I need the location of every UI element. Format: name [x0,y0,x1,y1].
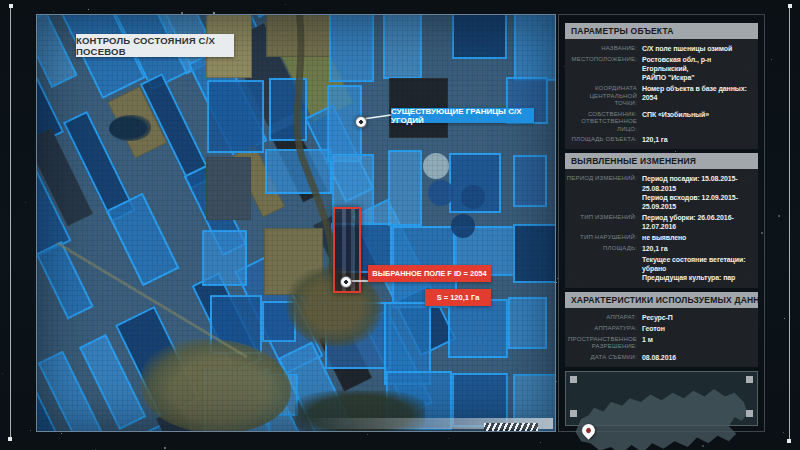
star-dot [448,438,449,439]
section-body: НАЗВАНИЕ:С/Х поле пшеницы озимойМЕСТОПОЛ… [565,39,758,149]
row-value: Текущее состояние вегетации: убрано Пред… [642,255,754,282]
satellite-map[interactable]: КОНТРОЛЬ СОСТОЯНИЯ С/Х ПОСЕВОВ СУЩЕСТВУЮ… [36,14,556,432]
row-value: 1 м [642,335,754,351]
info-row: ДАТА СЪЕМКИ:08.08.2016 [565,353,754,362]
map-field[interactable] [514,14,556,81]
info-row: ПРОСТРАНСТВЕННОЕ РАЗРЕШЕНИЕ:1 м [565,335,754,351]
map-field[interactable] [207,80,264,153]
map-field[interactable] [206,157,251,220]
row-label: КООРДИНАТА ЦЕНТРАЛЬНОЙ ТОЧКИ: [565,84,637,108]
map-field[interactable] [269,78,307,141]
lake-patch [109,115,151,141]
row-label: ПЕРИОД ИЗМЕНЕНИЙ: [565,174,637,210]
right-frame-top-cap [788,4,792,8]
map-field[interactable] [266,14,331,57]
irrigation-circle [423,153,449,179]
star-dot [53,11,54,12]
scale-stripes-icon [484,423,538,431]
info-row: ТИП НАРУШЕНИЙ:не выявлено [565,233,754,242]
star-dot [164,447,166,449]
info-row: КООРДИНАТА ЦЕНТРАЛЬНОЙ ТОЧКИ:Номер объек… [565,84,754,108]
row-value: С/Х поле пшеницы озимой [642,44,754,53]
right-frame-line [789,6,790,440]
info-section: ХАРАКТЕРИСТИКИ ИСПОЛЬЗУЕМЫХ ДАННЫХ ДЗЗАП… [565,292,758,367]
row-label: НАЗВАНИЕ: [565,44,637,53]
info-sidebar: ПАРАМЕТРЫ ОБЪЕКТАНАЗВАНИЕ:С/Х поле пшени… [558,14,765,432]
row-label: ДАТА СЪЕМКИ: [565,353,637,362]
map-field[interactable] [508,297,547,349]
row-label: АППАРАТ: [565,313,637,322]
overview-minimap[interactable] [565,371,758,426]
minimap-corner-marker [570,410,577,417]
star-dot [778,215,780,217]
row-label: СОБСТВЕННИК: ОТВЕТСТВЕННОЕ ЛИЦО: [565,110,637,134]
minimap-corner-marker [746,410,753,417]
row-value: 120,1 га [642,244,754,253]
row-label: ПРОСТРАНСТВЕННОЕ РАЗРЕШЕНИЕ: [565,335,637,351]
boundaries-callout-label: СУЩЕСТВУЮЩИЕ ГРАНИЦЫ С/Х УГОДИЙ [391,108,534,123]
right-frame-bottom-cap [787,439,791,443]
star-dot [25,202,26,203]
star-dot [30,430,31,431]
row-value: Ресурс-П [642,313,754,322]
selected-field-marker-icon [340,276,352,288]
sidebar-sections: ПАРАМЕТРЫ ОБЪЕКТАНАЗВАНИЕ:С/Х поле пшени… [565,23,758,371]
section-header: ВЫЯВЛЕННЫЕ ИЗМЕНЕНИЯ [565,153,758,169]
info-row: ПЕРИОД ИЗМЕНЕНИЙ:Период посадки: 15.08.2… [565,174,754,210]
row-label [565,255,637,282]
map-field[interactable] [106,193,180,286]
row-value: 120,1 га [642,135,754,144]
info-row: ТИП ИЗМЕНЕНИЙ:Период уборки: 26.06.2016-… [565,213,754,231]
star-dot [540,442,541,443]
star-dot [285,4,286,5]
star-dot [784,318,785,319]
left-frame-bottom-cap [8,437,12,441]
info-row: АППАРАТУРА:Геотон [565,324,754,333]
star-dot [88,9,89,10]
info-row: АППАРАТ:Ресурс-П [565,313,754,322]
info-row: ПЛОЩАДЬ:120,1 га [565,244,754,253]
row-value: не выявлено [642,233,754,242]
selected-field-callout-label: ВЫБРАННОЕ ПОЛЕ F ID = 2054 [368,265,491,282]
star-dot [61,433,62,434]
selected-field-area-label: S = 120,1 Га [425,289,491,306]
info-row: СОБСТВЕННИК: ОТВЕТСТВЕННОЕ ЛИЦО:СПК «Изо… [565,110,754,134]
irrigation-circle [428,180,454,206]
info-row: ПЛОЩАДЬ ОБЪЕКТА:120,1 га [565,135,754,144]
row-label: ПЛОЩАДЬ: [565,244,637,253]
russia-silhouette [568,374,755,450]
section-body: АППАРАТ:Ресурс-ПАППАРАТУРА:ГеотонПРОСТРА… [565,308,758,367]
info-row: МЕСТОПОЛОЖЕНИЕ:Ростовская обл., р-н Егор… [565,55,754,82]
info-row: Текущее состояние вегетации: убрано Пред… [565,255,754,282]
star-dot [556,381,557,382]
row-value: Период уборки: 26.06.2016-12.07.2016 [642,213,754,231]
section-header: ПАРАМЕТРЫ ОБЪЕКТА [565,23,758,39]
map-title-label: КОНТРОЛЬ СОСТОЯНИЯ С/Х ПОСЕВОВ [76,34,234,57]
info-row: НАЗВАНИЕ:С/Х поле пшеницы озимой [565,44,754,53]
row-value: Ростовская обл., р-н Егорлыкский, РАЙПО … [642,55,754,82]
row-label: ТИП ИЗМЕНЕНИЙ: [565,213,637,231]
row-value: Номер объекта в базе данных: 2054 [642,84,754,108]
map-field[interactable] [383,14,422,79]
row-label: ПЛОЩАДЬ ОБЪЕКТА: [565,135,637,144]
boundary-marker-icon [355,116,367,128]
star-dot [367,434,368,435]
section-body: ПЕРИОД ИЗМЕНЕНИЙ:Период посадки: 15.08.2… [565,169,758,287]
row-value: Период посадки: 15.08.2015-25.08.2015 Пе… [642,174,754,210]
map-field[interactable] [448,299,508,358]
star-dot [771,59,772,60]
map-field[interactable] [388,150,422,226]
section-header: ХАРАКТЕРИСТИКИ ИСПОЛЬЗУЕМЫХ ДАННЫХ ДЗЗ [565,292,758,308]
map-field[interactable] [202,230,247,286]
minimap-corner-marker [746,376,753,383]
map-field[interactable] [265,149,332,194]
map-field[interactable] [36,241,94,319]
map-field[interactable] [513,155,547,207]
row-label: ТИП НАРУШЕНИЙ: [565,233,637,242]
row-label: МЕСТОПОЛОЖЕНИЕ: [565,55,637,82]
star-dot [783,432,784,433]
info-section: ПАРАМЕТРЫ ОБЪЕКТАНАЗВАНИЕ:С/Х поле пшени… [565,23,758,149]
map-field[interactable] [452,14,507,59]
info-section: ВЫЯВЛЕННЫЕ ИЗМЕНЕНИЯПЕРИОД ИЗМЕНЕНИЙ:Пер… [565,153,758,287]
minimap-corner-marker [570,376,577,383]
irrigation-circle [451,214,475,238]
row-label: АППАРАТУРА: [565,324,637,333]
left-frame-line [10,6,11,438]
row-value: 08.08.2016 [642,353,754,362]
map-field[interactable] [513,224,556,283]
left-frame-top-cap [9,4,13,8]
row-value: Геотон [642,324,754,333]
star-dot [2,373,3,374]
star-dot [556,282,557,283]
map-field[interactable] [329,14,374,82]
irrigation-circle [461,185,485,209]
row-value: СПК «Изобильный» [642,110,754,134]
